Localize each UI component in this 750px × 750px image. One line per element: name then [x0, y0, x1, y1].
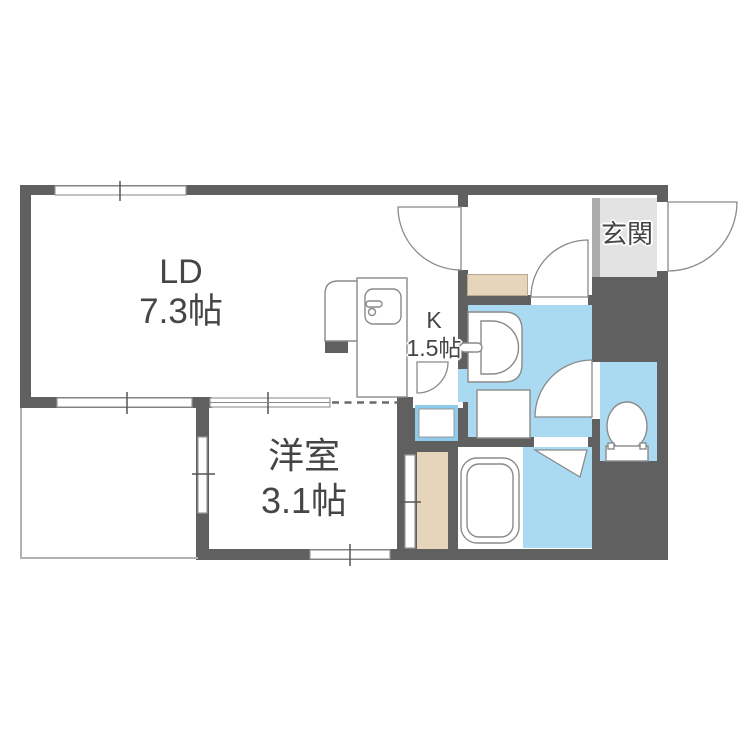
room-label-entrance: 玄関	[594, 220, 660, 248]
balcony-outline	[21, 408, 198, 558]
ld-size: 7.3帖	[81, 292, 281, 332]
floor-plan: LD 7.3帖 K 1.5帖 洋室 3.1帖 玄関	[0, 0, 750, 750]
ld-name: LD	[81, 252, 281, 292]
toilet	[606, 402, 648, 461]
kitchen-name: K	[384, 306, 484, 334]
room-label-ld: LD 7.3帖	[81, 252, 281, 332]
washroom-door	[531, 240, 588, 297]
entrance-door	[668, 202, 737, 271]
entrance-name: 玄関	[594, 220, 660, 248]
kitchen-door	[398, 207, 461, 270]
washing-machine-space	[477, 390, 530, 438]
washing-machine-pan	[415, 405, 458, 441]
bathroom-folding-door	[535, 450, 587, 477]
western-room-size: 3.1帖	[204, 478, 404, 523]
plan-linework	[0, 0, 750, 750]
kitchen-size: 1.5帖	[384, 334, 484, 362]
bathtub	[461, 458, 519, 543]
western-room-name: 洋室	[204, 433, 404, 478]
room-label-western-room: 洋室 3.1帖	[204, 433, 404, 523]
service-door	[417, 362, 448, 393]
room-label-kitchen: K 1.5帖	[384, 306, 484, 362]
toilet-door	[535, 360, 592, 417]
